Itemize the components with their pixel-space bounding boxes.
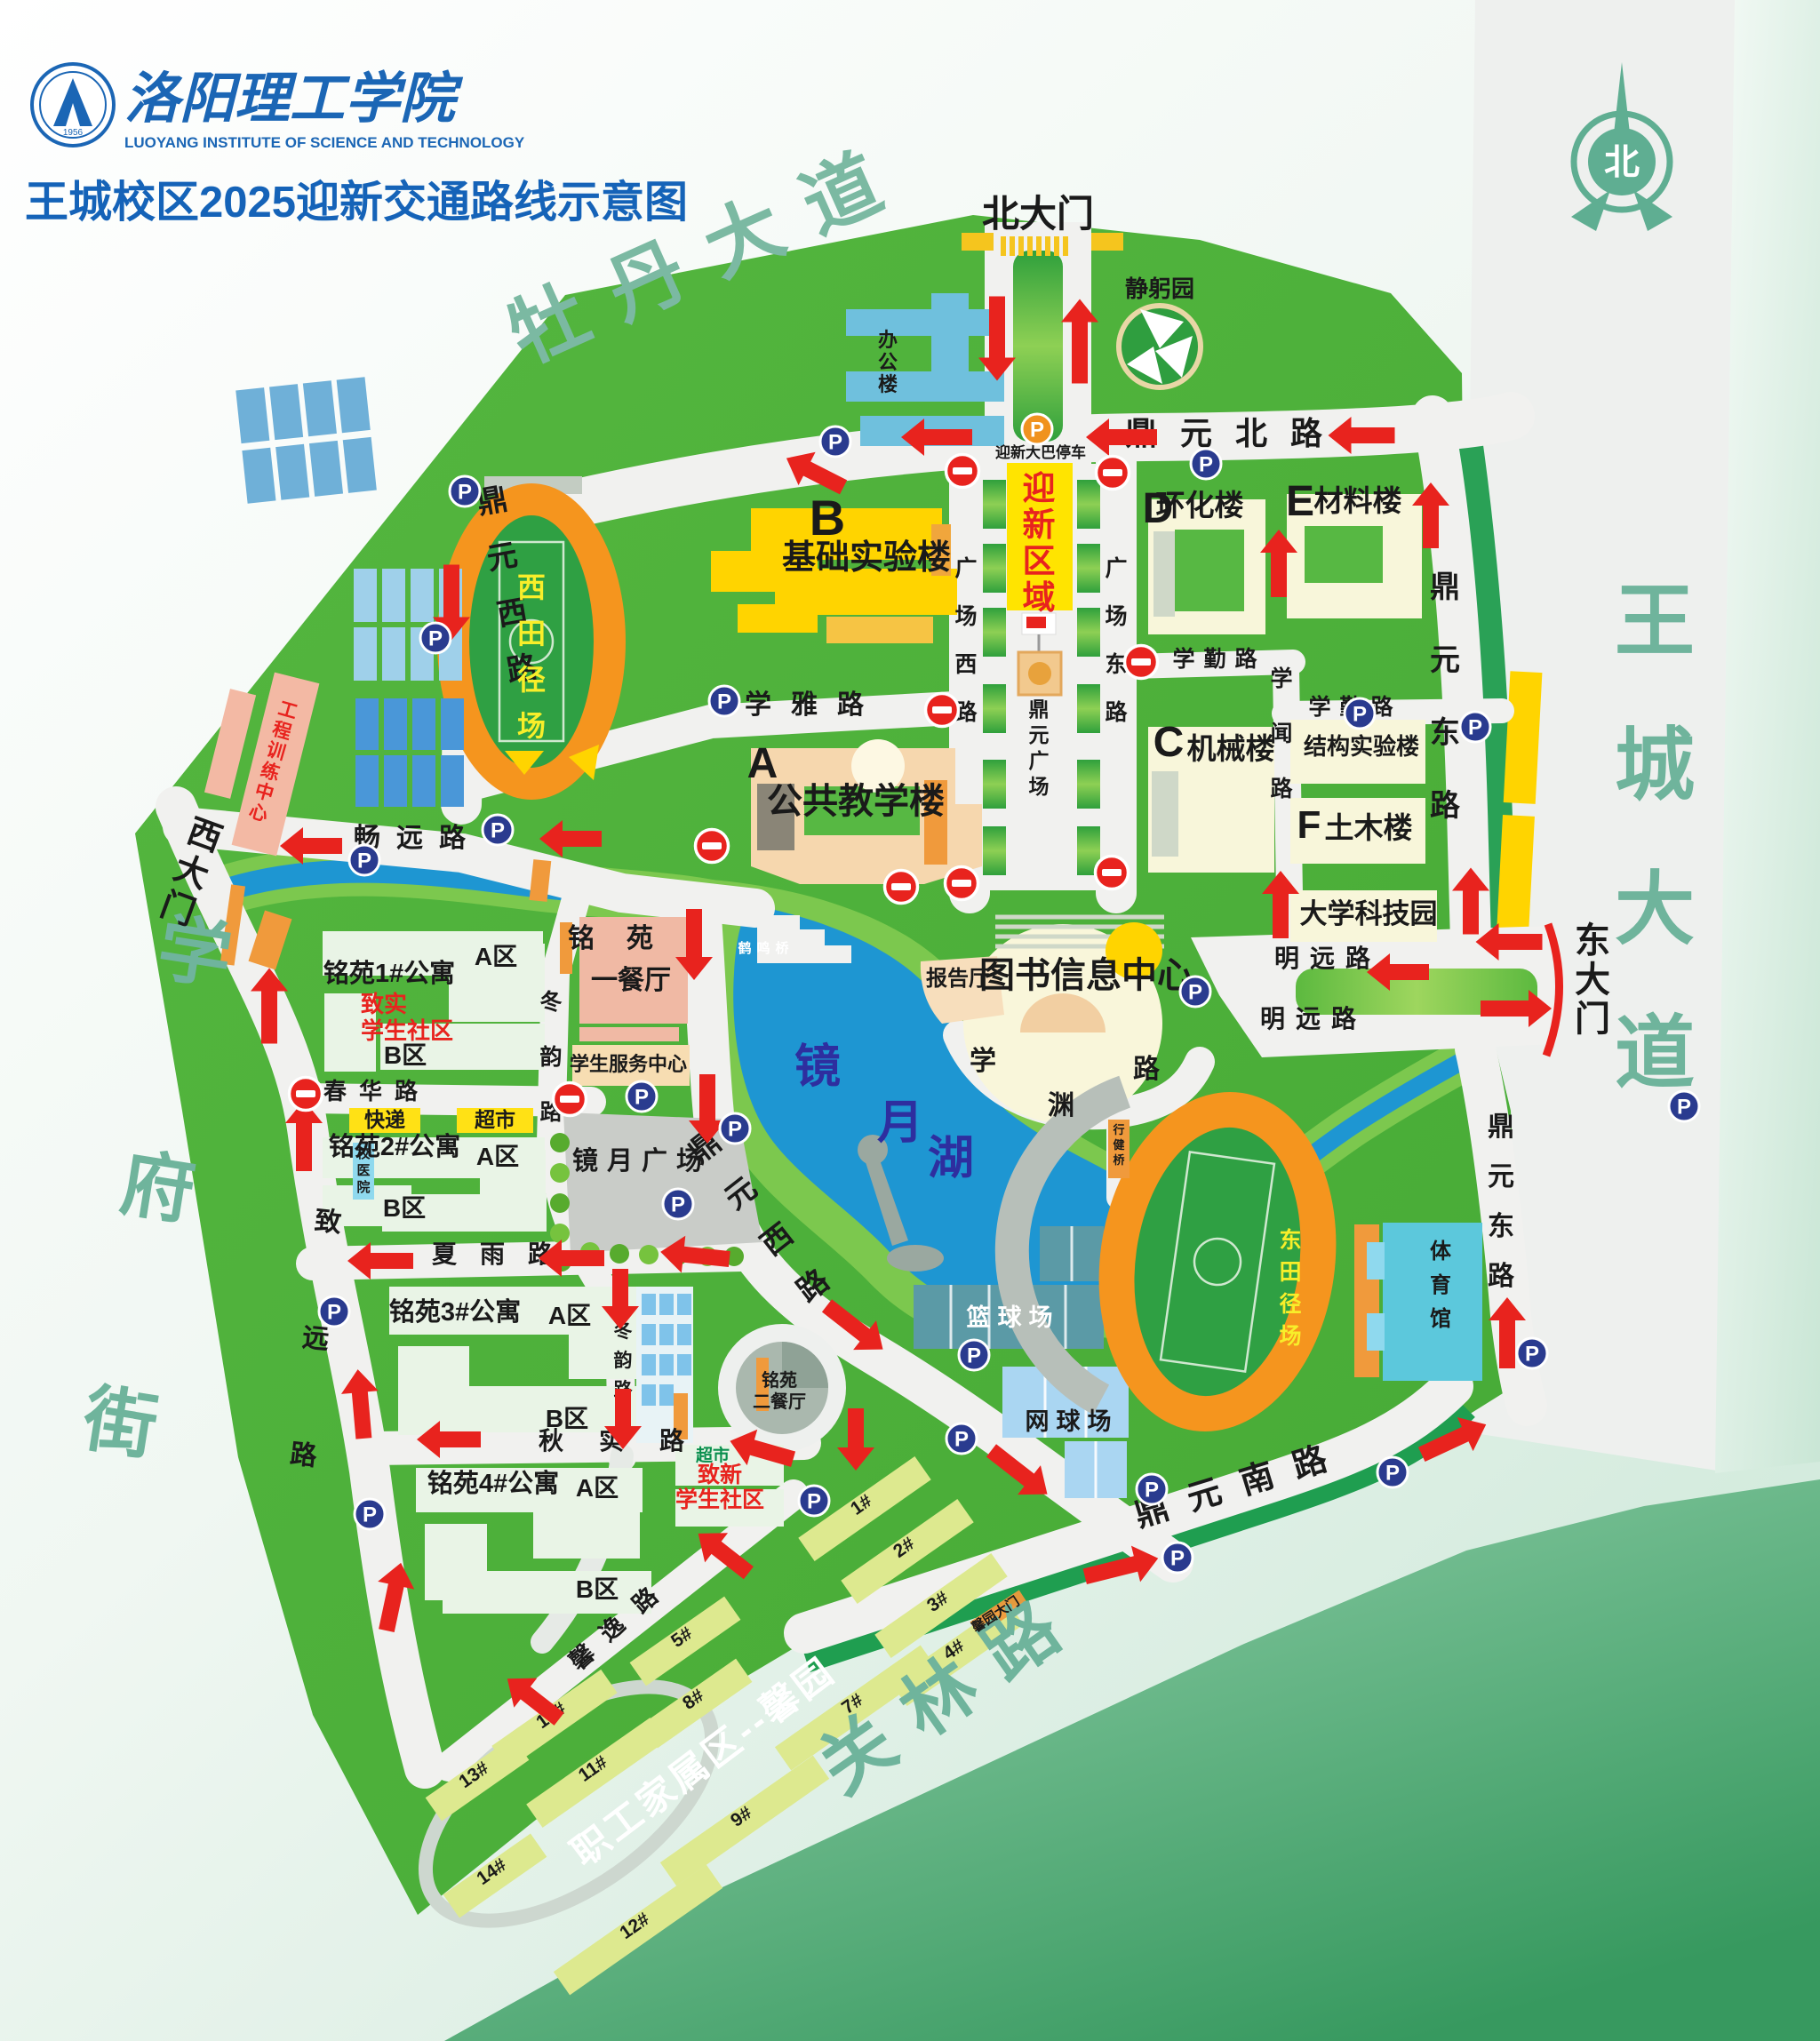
building-gym <box>1354 1223 1482 1381</box>
bridge-heming: 鹤鸣桥 <box>738 940 794 956</box>
bldg-mingyuan4: 铭苑4#公寓 <box>427 1468 559 1498</box>
bldg-canteen2-line2: 二餐厅 <box>753 1391 806 1412</box>
parking-icon: P <box>709 686 739 716</box>
svg-text:P: P <box>1188 981 1202 1005</box>
no-entry-icon <box>946 867 978 900</box>
bldg-service-center: 学生服务中心 <box>570 1053 687 1075</box>
parking-icon: P <box>450 476 480 506</box>
shop-kuaidi: 快递 <box>364 1108 405 1131</box>
svg-text:P: P <box>1170 1547 1185 1571</box>
tree-dot <box>610 1244 629 1264</box>
compass-label: 北 <box>1604 143 1640 182</box>
bldg-xiaoyiyuan: 校医院 <box>356 1145 371 1195</box>
bldg-A-letter: A <box>747 740 778 787</box>
court-basketball: 篮球场 <box>966 1304 1060 1331</box>
svg-text:P: P <box>357 849 371 873</box>
bldg-canteen1-line2: 一餐厅 <box>591 966 671 995</box>
svg-text:P: P <box>1199 453 1213 477</box>
parking-icon: P <box>420 623 451 653</box>
zhixin-line2: 学生社区 <box>675 1487 764 1512</box>
bldg-F-letter: F <box>1297 803 1321 847</box>
parking-icon: P <box>1191 449 1221 479</box>
svg-text:P: P <box>428 627 443 651</box>
tree-dot <box>550 1163 570 1183</box>
campus-map: 北 1956 洛阳理工学院 LUOYANG INSTITUTE OF SCIEN… <box>0 0 1820 2041</box>
svg-text:P: P <box>728 1118 742 1142</box>
svg-text:P: P <box>967 1344 981 1368</box>
road-dingyuan-north: 鼎元北路 <box>1125 415 1345 451</box>
svg-text:P: P <box>671 1193 685 1217</box>
zone-yingxin: 迎新区域 <box>1023 470 1056 616</box>
svg-text:P: P <box>807 1490 821 1514</box>
mingyuan4-b: B区 <box>576 1575 619 1603</box>
mingyuan1-a: A区 <box>475 943 517 970</box>
no-entry-icon <box>554 1083 587 1116</box>
mingyuan2-b: B区 <box>383 1194 426 1222</box>
shop-chaoshi-1: 超市 <box>475 1108 515 1131</box>
parking-icon: P <box>820 427 850 457</box>
parking-icon: P <box>959 1340 989 1370</box>
parking-icon: P <box>1377 1457 1408 1487</box>
svg-text:P: P <box>1385 1462 1400 1486</box>
no-entry-icon <box>1097 457 1130 490</box>
no-entry-icon <box>946 455 979 488</box>
garden-jinggong: 静躬园 <box>1125 275 1194 302</box>
page-title: 王城校区2025迎新交通路线示意图 <box>25 179 688 227</box>
road-dongyun-2: 冬韵路 <box>614 1320 634 1400</box>
plaza-jingyue: 镜月广场 <box>572 1145 711 1176</box>
parking-icon: P <box>627 1081 657 1112</box>
label-bus-parking: 迎新大巴停车 <box>995 443 1086 461</box>
zhishi-line2: 学生社区 <box>361 1017 453 1044</box>
bldg-canteen1-line1: 铭苑 <box>568 924 685 953</box>
bridge-xingjian: 行健桥 <box>1112 1123 1125 1167</box>
road-mingyuan-2: 明远路 <box>1260 1005 1367 1032</box>
bldg-E-name: 材料楼 <box>1314 484 1402 517</box>
mingyuan2-a: A区 <box>476 1143 519 1170</box>
bldg-B-name: 基础实验楼 <box>782 539 951 577</box>
no-entry-icon <box>885 871 918 904</box>
bus-parking-icon: P <box>1022 414 1052 444</box>
svg-text:P: P <box>458 481 472 505</box>
logo-year: 1956 <box>63 128 84 138</box>
road-xueyuan-2: 渊 <box>1048 1091 1074 1120</box>
svg-text:P: P <box>491 819 505 843</box>
bldg-canteen2-line1: 铭苑 <box>762 1369 797 1391</box>
lake-char-2: 月 <box>877 1097 923 1149</box>
zhixin-line1: 致新 <box>698 1462 742 1487</box>
parking-icon: P <box>355 1499 385 1529</box>
parking-icon: P <box>720 1113 750 1144</box>
parking-icon: P <box>1162 1543 1193 1573</box>
svg-text:P: P <box>1525 1343 1539 1367</box>
gate-north: 北大门 <box>982 193 1094 235</box>
svg-text:P: P <box>1030 419 1044 442</box>
logo-en: LUOYANG INSTITUTE OF SCIENCE AND TECHNOL… <box>124 134 525 151</box>
mingyuan3-a: A区 <box>548 1302 591 1329</box>
no-entry-icon <box>926 694 959 727</box>
bldg-keji: 大学科技园 <box>1300 898 1438 929</box>
svg-text:P: P <box>635 1086 649 1110</box>
parking-icon: P <box>1180 977 1210 1007</box>
bldg-gym: 体育馆 <box>1430 1240 1452 1331</box>
tree-dot <box>550 1193 570 1213</box>
tree-dot <box>550 1133 570 1152</box>
parking-icon: P <box>799 1486 829 1516</box>
svg-text:P: P <box>1677 1096 1691 1120</box>
zhishi-line1: 致实 <box>361 991 407 1017</box>
svg-text:P: P <box>954 1428 969 1452</box>
bldg-mingyuan3: 铭苑3#公寓 <box>389 1296 521 1327</box>
bldg-F-name: 土木楼 <box>1325 811 1413 844</box>
svg-text:P: P <box>828 431 842 455</box>
lake-char-1: 镜 <box>794 1041 841 1093</box>
bldg-office: 办公楼 <box>878 329 898 395</box>
parking-icon: P <box>1517 1338 1547 1368</box>
logo-cn: 洛阳理工学院 <box>124 66 464 131</box>
mingyuan3-b: B区 <box>546 1405 588 1432</box>
no-entry-icon <box>696 830 729 863</box>
road-xueqin-1: 学勤路 <box>1172 646 1265 672</box>
road-chunhua: 春华路 <box>323 1078 430 1104</box>
mingyuan1-b: B区 <box>384 1041 427 1069</box>
court-tennis: 网球场 <box>1026 1408 1119 1435</box>
svg-text:P: P <box>1145 1479 1159 1503</box>
no-entry-icon <box>290 1078 323 1111</box>
parking-icon: P <box>1460 712 1490 742</box>
road-xueyuan-3: 路 <box>1133 1055 1161 1084</box>
no-entry-icon <box>1125 646 1158 679</box>
bldg-C-name: 机械楼 <box>1187 732 1275 765</box>
mingyuan4-a: A区 <box>576 1474 619 1502</box>
bldg-A-name: 公共教学楼 <box>767 782 945 821</box>
svg-text:P: P <box>327 1301 341 1325</box>
parking-icon: P <box>349 845 379 875</box>
parking-icon: P <box>483 815 513 845</box>
road-xueya: 学雅路 <box>745 690 883 720</box>
road-xueyuan-1: 学 <box>970 1046 996 1076</box>
svg-text:P: P <box>1468 716 1482 740</box>
parking-icon: P <box>1345 698 1375 729</box>
flag-monument <box>1018 613 1061 695</box>
parking-icon: P <box>1669 1091 1699 1121</box>
gate-east: 东大门 <box>1575 921 1610 1039</box>
building-solar-dorm <box>636 1287 693 1443</box>
tree-dot <box>639 1245 659 1264</box>
bldg-library: 图书信息中心 <box>979 956 1193 995</box>
parking-icon: P <box>319 1296 349 1327</box>
bldg-mingyuan2: 铭苑2#公寓 <box>329 1131 460 1161</box>
bldg-jiegou: 结构实验楼 <box>1304 733 1419 760</box>
garden-jinggong-icon <box>1119 306 1201 387</box>
parking-icon: P <box>1137 1474 1167 1504</box>
road-mingyuan-1: 明远路 <box>1274 945 1381 972</box>
no-entry-icon <box>1096 857 1129 889</box>
svg-text:P: P <box>363 1503 377 1527</box>
svg-text:P: P <box>1353 703 1367 727</box>
parking-icon: P <box>946 1423 977 1454</box>
parking-icon: P <box>663 1189 693 1219</box>
bldg-E-letter: E <box>1286 478 1314 525</box>
bldg-C-letter: C <box>1153 719 1185 766</box>
svg-text:P: P <box>717 690 731 714</box>
bldg-D-name: 环化楼 <box>1156 489 1244 522</box>
lake-char-3: 湖 <box>928 1133 974 1184</box>
bldg-mingyuan1: 铭苑1#公寓 <box>323 958 455 988</box>
bldg-B-letter: B <box>810 490 845 546</box>
